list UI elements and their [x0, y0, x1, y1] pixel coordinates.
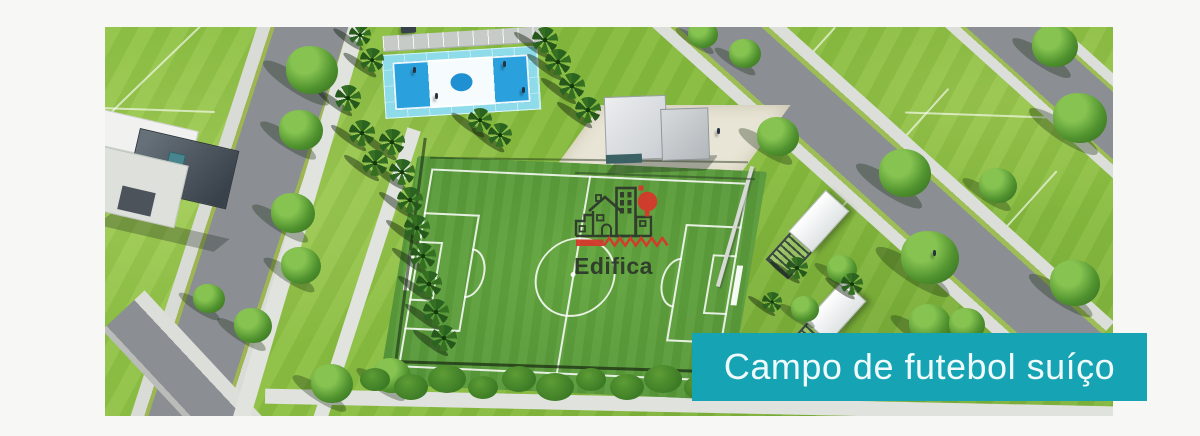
palm-tree-icon: [431, 325, 457, 351]
hedge-shrub: [428, 365, 466, 394]
hedge-shrub: [536, 373, 574, 402]
caption-banner: Campo de futebol suíço: [692, 333, 1147, 401]
tree: [271, 193, 315, 233]
caption-text: Campo de futebol suíço: [724, 346, 1115, 388]
promo-render-image: Edifica Campo de futebol suíço: [0, 0, 1200, 436]
tree: [791, 296, 819, 322]
palm-tree-icon: [335, 85, 361, 111]
tree: [688, 27, 718, 48]
person: [933, 250, 936, 256]
palm-tree-icon: [362, 150, 388, 176]
palm-tree-icon: [545, 49, 571, 75]
hedge-shrub: [394, 374, 428, 400]
hedge-shrub: [360, 368, 390, 391]
palm-tree-icon: [404, 215, 430, 241]
tree: [1032, 27, 1078, 67]
palm-tree-icon: [397, 187, 423, 213]
palm-tree-icon: [379, 129, 405, 155]
tree: [311, 364, 353, 403]
hedge-shrub: [468, 376, 498, 399]
hedge-shrub: [644, 365, 682, 394]
palm-tree-icon: [575, 97, 601, 123]
edifica-logo-text: Edifica: [574, 255, 674, 278]
palm-tree-icon: [786, 257, 808, 279]
palm-tree-icon: [762, 292, 782, 312]
tree: [879, 149, 931, 197]
palm-tree-icon: [349, 120, 375, 146]
person: [435, 93, 438, 99]
tree: [193, 284, 225, 313]
palm-tree-icon: [841, 273, 863, 295]
palm-tree-icon: [423, 299, 449, 325]
person: [413, 67, 416, 73]
palm-tree-icon: [488, 123, 512, 147]
palm-tree-icon: [360, 48, 384, 72]
tree: [234, 308, 272, 343]
person: [717, 128, 720, 134]
edifica-logo-icon: [574, 184, 670, 248]
tree: [1053, 93, 1107, 143]
palm-tree-icon: [389, 159, 415, 185]
edifica-watermark: Edifica: [574, 184, 674, 278]
tree: [729, 39, 761, 68]
palm-tree-icon: [349, 27, 371, 46]
palm-tree-icon: [416, 271, 442, 297]
palm-tree-icon: [410, 243, 436, 269]
tree: [279, 110, 323, 150]
person: [503, 61, 506, 67]
tree: [281, 247, 321, 284]
tree: [979, 168, 1017, 203]
hedge-shrub: [610, 374, 644, 400]
tree: [757, 117, 799, 156]
hedge-shrub: [576, 368, 606, 391]
tree: [1050, 260, 1100, 306]
tree: [286, 46, 338, 94]
hedge-shrub: [502, 366, 536, 392]
palm-tree-icon: [468, 108, 492, 132]
palm-tree-icon: [559, 73, 585, 99]
person: [522, 87, 525, 93]
tree: [901, 231, 959, 284]
